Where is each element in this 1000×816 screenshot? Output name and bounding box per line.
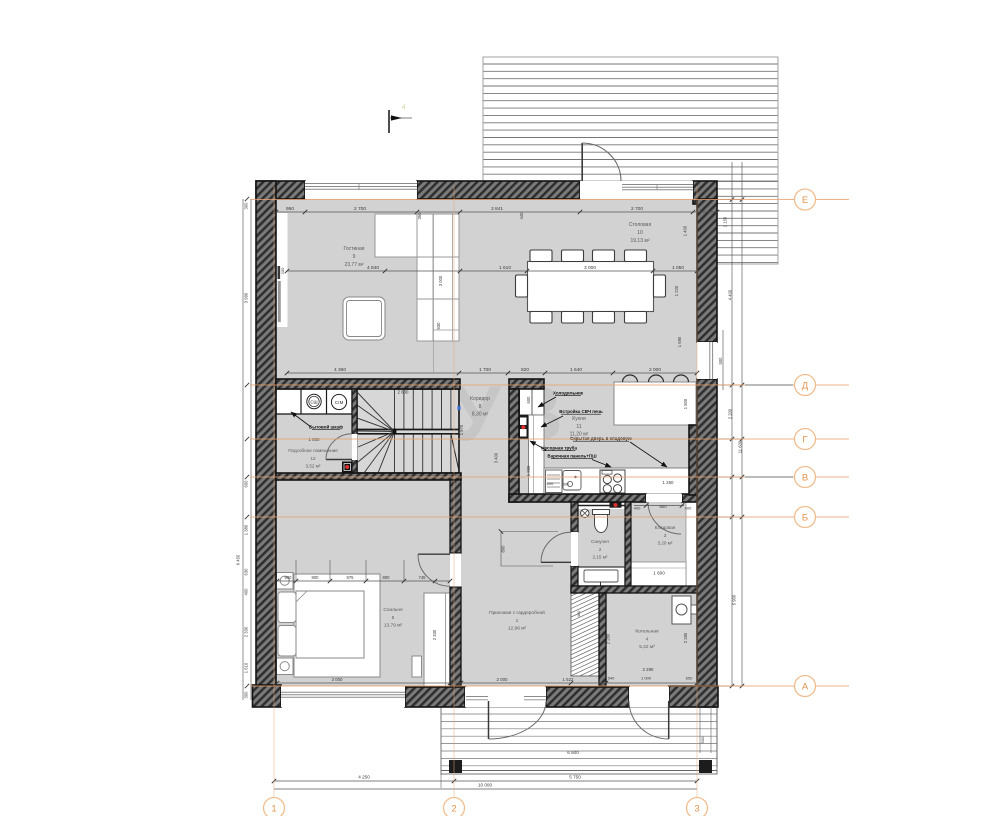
svg-text:3 000: 3 000 [584,265,596,271]
svg-text:1 970: 1 970 [459,424,464,435]
svg-text:Спальня: Спальня [383,607,403,613]
svg-text:1 380: 1 380 [244,524,249,535]
svg-text:1 610: 1 610 [244,662,249,673]
svg-text:6 450: 6 450 [236,554,241,565]
svg-text:540: 540 [608,676,615,681]
svg-text:8,30 м²: 8,30 м² [472,412,489,418]
svg-text:Б: Б [802,512,808,523]
svg-text:10 000: 10 000 [478,783,492,788]
svg-text:5 900: 5 900 [732,594,737,605]
svg-text:800: 800 [312,575,320,580]
svg-text:Столовая: Столовая [629,222,652,228]
svg-text:360: 360 [417,212,422,220]
svg-text:2 700: 2 700 [354,206,366,212]
svg-text:200: 200 [280,267,285,274]
svg-text:Мусорная труба: Мусорная труба [541,445,577,451]
svg-text:3 400: 3 400 [494,452,499,463]
svg-text:600: 600 [547,481,554,486]
svg-text:Холодильник: Холодильник [553,391,584,396]
svg-text:1 050: 1 050 [672,265,684,271]
svg-text:400: 400 [576,610,581,617]
svg-text:5: 5 [392,615,395,621]
svg-text:Кладовая: Кладовая [655,525,676,530]
svg-text:12,96 м²: 12,96 м² [508,626,527,632]
svg-text:2 700: 2 700 [631,206,643,212]
svg-text:4: 4 [646,637,649,643]
svg-text:4 360: 4 360 [334,367,346,373]
svg-text:4 400: 4 400 [728,289,733,300]
svg-text:Котельная: Котельная [635,629,659,635]
svg-text:13,79 м²: 13,79 м² [384,623,403,629]
svg-text:500: 500 [700,736,705,743]
svg-text:В: В [802,472,808,483]
svg-text:2 630: 2 630 [398,390,410,395]
svg-text:3: 3 [694,803,699,814]
svg-text:9: 9 [353,254,356,260]
svg-text:1 800: 1 800 [683,398,688,409]
svg-text:11 600: 11 600 [738,440,743,453]
svg-text:1 220: 1 220 [674,285,679,296]
svg-text:3,20 м²: 3,20 м² [658,541,673,546]
svg-text:19,13 м²: 19,13 м² [630,238,649,244]
svg-text:600: 600 [244,480,249,488]
svg-text:5 750: 5 750 [569,775,581,780]
svg-text:820: 820 [521,367,529,373]
svg-text:1 800: 1 800 [309,437,321,442]
svg-text:2,15 м²: 2,15 м² [593,555,608,560]
svg-text:3 990: 3 990 [244,292,249,303]
svg-text:2: 2 [451,803,456,814]
svg-text:Прихожая с гардеробной: Прихожая с гардеробной [489,609,545,616]
svg-text:800: 800 [383,575,391,580]
svg-text:11: 11 [576,424,581,430]
svg-text:2 280: 2 280 [606,633,611,644]
svg-text:300: 300 [244,691,249,699]
svg-text:800: 800 [501,545,506,553]
svg-text:8: 8 [479,404,482,410]
svg-text:Гостиная: Гостиная [344,246,365,252]
svg-text:4 250: 4 250 [358,775,370,780]
svg-text:10: 10 [637,230,643,236]
svg-text:1 690: 1 690 [677,336,682,347]
svg-text:2 280: 2 280 [683,632,688,643]
svg-text:4 840: 4 840 [367,265,379,271]
svg-text:СтМ: СтМ [335,400,344,405]
svg-text:Коридор: Коридор [470,396,490,402]
svg-text:Г: Г [802,434,807,445]
svg-text:А: А [802,681,809,692]
svg-text:Кухня: Кухня [572,416,586,422]
svg-text:Санузел: Санузел [591,539,609,544]
svg-text:440: 440 [519,212,524,220]
svg-text:Д: Д [802,380,809,391]
svg-text:800: 800 [659,504,667,509]
svg-text:1 610: 1 610 [499,265,511,271]
svg-text:1: 1 [516,618,519,624]
svg-text:400: 400 [634,506,641,511]
svg-text:3: 3 [664,533,667,538]
svg-text:745: 745 [419,575,427,580]
svg-text:900: 900 [285,575,293,580]
svg-text:Е: Е [802,195,808,206]
svg-text:630: 630 [244,568,249,576]
svg-text:2: 2 [599,547,602,552]
svg-text:300: 300 [244,202,249,210]
svg-text:2 330: 2 330 [244,626,249,637]
svg-text:1 700: 1 700 [479,367,491,373]
svg-text:950: 950 [286,206,294,212]
svg-text:930: 930 [436,322,441,330]
svg-text:1 000: 1 000 [641,676,652,681]
svg-text:3 000: 3 000 [332,677,344,682]
svg-text:23,77 м²: 23,77 м² [344,262,363,268]
svg-text:2 290: 2 290 [643,667,655,672]
svg-text:6 500: 6 500 [567,750,579,755]
svg-text:Варочная панель+ПШ: Варочная панель+ПШ [547,454,597,459]
svg-text:3 841: 3 841 [491,206,503,212]
svg-text:1 522: 1 522 [563,677,575,682]
svg-text:1 600: 1 600 [653,571,665,576]
svg-text:2 330: 2 330 [432,629,437,640]
svg-text:2 000: 2 000 [649,367,661,373]
svg-text:1 280: 1 280 [526,465,531,476]
svg-text:12: 12 [310,456,316,461]
svg-text:5,22 м²: 5,22 м² [639,644,655,650]
svg-text:1 400: 1 400 [683,225,688,236]
svg-text:600: 600 [526,396,531,404]
svg-text:875: 875 [347,575,355,580]
svg-text:800: 800 [563,482,570,487]
svg-text:400: 400 [244,588,249,596]
svg-text:СШ: СШ [310,400,317,405]
svg-text:2 000: 2 000 [497,677,509,682]
svg-text:1 250: 1 250 [663,480,675,485]
svg-text:1: 1 [271,803,276,814]
svg-text:Подсобное помещение: Подсобное помещение [288,448,338,453]
svg-text:1 150: 1 150 [723,216,728,227]
svg-text:Скрытая дверь в кладовую: Скрытая дверь в кладовую [570,436,632,441]
svg-text:Бытовой шкаф: Бытовой шкаф [309,424,343,430]
svg-text:1 640: 1 640 [570,367,582,373]
svg-text:650: 650 [686,676,693,681]
svg-text:2 200: 2 200 [728,408,733,419]
svg-text:400: 400 [685,506,692,511]
svg-text:Встройка СВЧ печь: Встройка СВЧ печь [559,408,603,414]
svg-text:500: 500 [718,357,723,365]
svg-text:3,52 м²: 3,52 м² [306,464,321,469]
svg-text:3 000: 3 000 [438,275,443,286]
